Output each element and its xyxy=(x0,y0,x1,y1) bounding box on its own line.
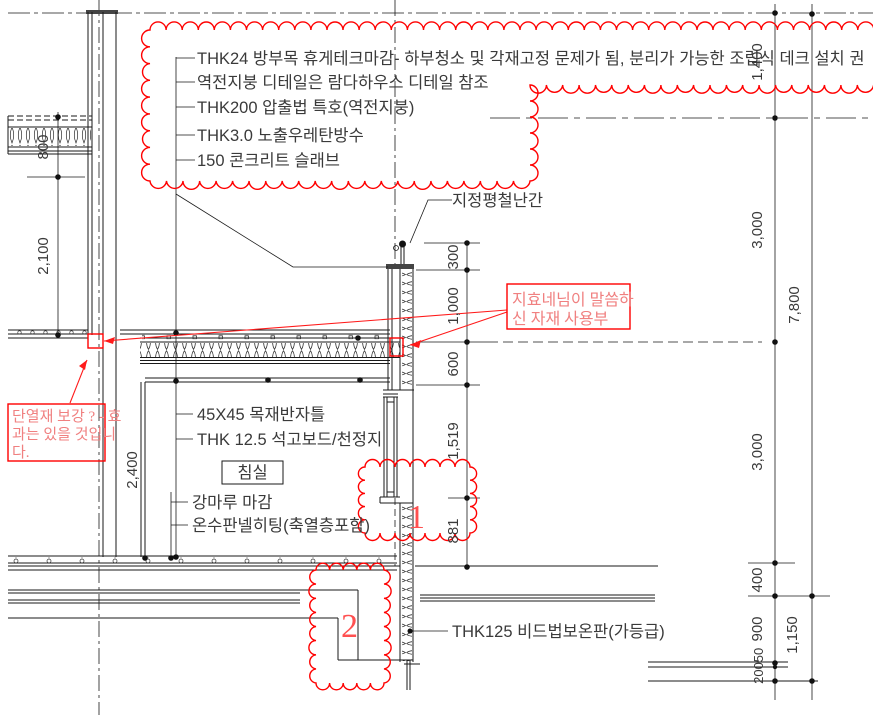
dim-3000b: 3,000 xyxy=(749,433,766,471)
floor-heating-pipes xyxy=(10,557,390,563)
railing-fixing xyxy=(394,246,399,251)
dim-3000a: 3,000 xyxy=(749,211,766,249)
callout-urethane: THK3.0 노출우레탄방수 xyxy=(197,126,364,145)
grade-lines xyxy=(648,662,818,681)
callout-ceiling-board: THK 12.5 석고보드/천정지 xyxy=(197,430,382,449)
window-head xyxy=(383,390,414,397)
detail-number-2: 2 xyxy=(341,608,358,645)
drawing-canvas: THK24 방부목 휴게테크마감- 하부청소 및 각재고정 문제가 됨, 분리가… xyxy=(0,0,873,715)
arrowhead-insulation xyxy=(79,360,87,370)
ceiling-bracket-ticks xyxy=(176,414,193,439)
dim-600: 600 xyxy=(445,351,462,376)
dim-1519: 1,519 xyxy=(445,422,462,460)
roof-stack-bracket-ticks xyxy=(176,58,195,160)
highlight-box-left-junction xyxy=(88,334,103,348)
callout-railing: 지정평철난간 xyxy=(452,191,543,210)
dim-400: 400 xyxy=(749,567,766,592)
dim-881: 881 xyxy=(445,518,462,543)
material-note-line2: 신 자재 사용부 xyxy=(512,310,608,328)
detail-number-1: 1 xyxy=(408,499,425,536)
dim-50: 50 xyxy=(751,648,766,662)
left-parapet-cap xyxy=(86,10,118,14)
dim-800: 800 xyxy=(35,134,52,159)
exterior-deck-lines xyxy=(415,566,658,601)
roof-stack-diagonal-leader xyxy=(176,194,388,267)
dim-2100: 2,100 xyxy=(35,237,52,275)
railing-ball-top xyxy=(399,241,406,248)
callout-slab: 150 콘크리트 슬래브 xyxy=(197,151,340,170)
insulation-note-line3: 다. xyxy=(12,444,30,461)
railing-leader xyxy=(410,200,452,243)
dim-900: 900 xyxy=(749,616,766,641)
dim-1150: 1,150 xyxy=(784,616,801,654)
right-parapet-cap xyxy=(386,264,414,269)
text-labels: THK24 방부목 휴게테크마감- 하부청소 및 각재고정 문제가 됨, 분리가… xyxy=(12,43,865,684)
dim-300: 300 xyxy=(445,244,462,269)
floor-slab-lines xyxy=(8,590,358,618)
terrace-soffit xyxy=(140,358,400,364)
left-wall-lines xyxy=(88,12,116,557)
callout-floor-heating: 온수판넬히팅(축열층포함) xyxy=(192,516,370,535)
callout-xps: THK200 압출법 특호(역전지붕) xyxy=(197,98,414,117)
wall-foot xyxy=(404,660,420,690)
callout-floor-finish: 강마루 마감 xyxy=(192,493,272,512)
dim-2400: 2,400 xyxy=(124,451,141,489)
callout-ceiling-frame: 45X45 목재반자틀 xyxy=(197,405,325,424)
material-note-line1: 지효네님이 말씀하 xyxy=(512,291,634,309)
dim-7800: 7,800 xyxy=(786,286,803,324)
railing-post xyxy=(401,247,404,264)
right-wall-insulation-upper xyxy=(402,271,412,388)
dim-200: 200 xyxy=(751,662,766,684)
insulation-note-line2: 과는 있을 것입니 xyxy=(12,426,116,443)
callout-inverted-roof: 역전지붕 디테일은 람다하우스 디테일 참조 xyxy=(197,73,489,92)
room-label: 침실 xyxy=(237,463,267,482)
dim-1400: 1,400 xyxy=(749,43,766,81)
cad-detail-drawing: THK24 방부목 휴게테크마감- 하부청소 및 각재고정 문제가 됨, 분리가… xyxy=(0,0,873,715)
upper-roof-top xyxy=(8,116,92,120)
callout-wall-insulation: THK125 비드법보온판(가등급) xyxy=(452,622,665,641)
dim-1000: 1,000 xyxy=(445,287,462,325)
floor-bracket xyxy=(171,492,188,558)
deck-fastener-circles xyxy=(10,331,87,336)
centerlines xyxy=(8,0,873,715)
insulation-note-line1: 단열재 보강 ? - 효 xyxy=(12,408,122,425)
arrowhead-left xyxy=(104,337,115,344)
terrace-insulation-hatch xyxy=(140,343,400,357)
window-frame xyxy=(384,397,397,497)
